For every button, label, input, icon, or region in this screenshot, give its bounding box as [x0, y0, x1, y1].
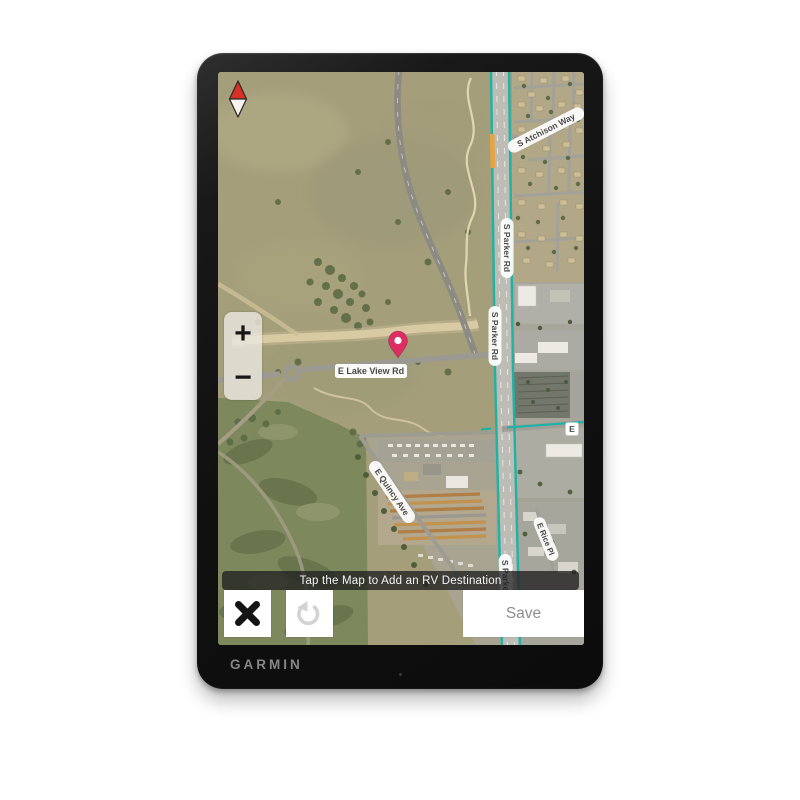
commercial-area-mid: [512, 282, 584, 425]
zoom-out-button[interactable]: −: [224, 356, 262, 400]
north-compass-icon[interactable]: [227, 80, 249, 118]
road-label-east: E: [566, 423, 579, 436]
svg-text:E Lake View Rd: E Lake View Rd: [338, 366, 404, 376]
road-label-lakeview: E Lake View Rd: [335, 364, 407, 378]
save-button-label: Save: [506, 605, 541, 623]
undo-button[interactable]: [286, 590, 333, 637]
instruction-toast: Tap the Map to Add an RV Destination: [222, 571, 579, 590]
road-label-parker-2: S Parker Rd: [489, 306, 502, 366]
undo-icon: [286, 590, 333, 637]
close-icon: [224, 590, 271, 637]
svg-text:S Parker Rd: S Parker Rd: [490, 312, 500, 360]
toast-text: Tap the Map to Add an RV Destination: [300, 575, 502, 587]
microphone-dot: [399, 673, 402, 676]
garmin-device-frame: S Atchison Way S Parker Rd S Parker Rd S…: [197, 53, 603, 689]
save-button[interactable]: Save: [463, 590, 584, 637]
zoom-in-button[interactable]: +: [224, 312, 262, 356]
svg-text:S Parker Rd: S Parker Rd: [502, 224, 512, 272]
close-button[interactable]: [224, 590, 271, 637]
traffic-slow-segment: [492, 134, 493, 168]
garmin-logo: GARMIN: [230, 657, 303, 672]
road-label-parker-1: S Parker Rd: [501, 218, 514, 278]
zoom-control: + −: [224, 312, 262, 400]
residential-area: [512, 72, 584, 282]
svg-text:E: E: [569, 424, 575, 434]
location-pin-icon: [387, 330, 409, 360]
device-screen: S Atchison Way S Parker Rd S Parker Rd S…: [218, 72, 584, 645]
